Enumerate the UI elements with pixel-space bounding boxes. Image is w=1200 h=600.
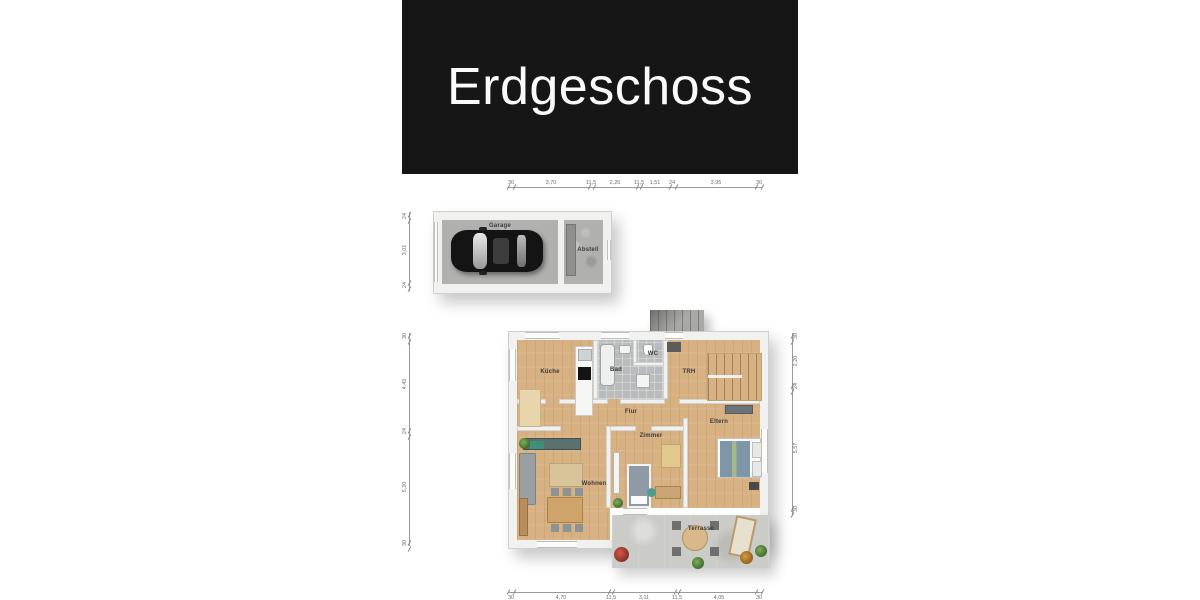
car-mirror	[479, 227, 487, 231]
room-label-garage: Garage	[489, 223, 511, 229]
dim-label: 1,51	[650, 180, 661, 186]
window	[537, 541, 577, 548]
blanket-icon	[720, 441, 750, 477]
room-label-terrasse: Terrasse	[688, 526, 714, 532]
dim-label: 2,26	[610, 180, 621, 186]
dining-table-icon	[547, 497, 583, 523]
chair-icon	[551, 524, 559, 532]
staircase-icon	[707, 353, 762, 401]
sideboard-icon	[523, 438, 581, 450]
window	[601, 332, 629, 339]
single-bed-icon	[627, 464, 651, 508]
window	[509, 349, 516, 381]
dim-label: 11,5	[634, 180, 644, 186]
dim-label: 3,95	[711, 180, 722, 186]
dresser-icon	[725, 405, 753, 414]
plant-icon	[755, 545, 767, 557]
doormat-icon	[667, 342, 681, 352]
dim-label: 5,20	[402, 482, 408, 493]
abstell-floor: Abstell	[564, 220, 603, 284]
room-label-trh: TRH	[683, 369, 696, 375]
pillow-icon	[631, 496, 647, 504]
nightstand-icon	[749, 482, 759, 490]
plant-icon	[519, 438, 530, 449]
page-title: Erdgeschoss	[447, 57, 753, 117]
dim-label: 24	[669, 180, 675, 186]
plant-icon	[613, 498, 623, 508]
window	[525, 332, 559, 339]
dim-line-house-left	[409, 333, 410, 546]
dim-label: 11,5	[606, 595, 616, 600]
bookshelf-icon	[519, 498, 528, 536]
car-icon	[451, 230, 543, 272]
kitchen-cooktop	[578, 367, 591, 380]
kitchen-counter	[575, 346, 593, 416]
car-windshield	[473, 233, 487, 269]
dim-label: 2,20	[793, 356, 799, 367]
floorplan-page: Erdgeschoss 30 3,70 11,5 2,26 11,5 1,51 …	[0, 0, 1200, 600]
window	[509, 453, 516, 489]
plant-icon	[692, 557, 704, 569]
wall-kueche-bad	[593, 340, 598, 399]
dim-label: 30	[793, 333, 799, 339]
wall-wohnen-zimmer	[606, 426, 611, 508]
dim-label: 30	[756, 180, 762, 186]
dim-label: 30	[793, 506, 799, 512]
desk-chair-icon	[647, 488, 656, 497]
terrace-chair-icon	[672, 521, 681, 530]
room-label-wc: WC	[648, 351, 658, 357]
dim-label: 11,5	[586, 180, 596, 186]
dim-label: 4,05	[714, 595, 725, 600]
room-label-zimmer: Zimmer	[640, 433, 663, 439]
room-label-bad: Bad	[610, 367, 622, 373]
dim-label: 30	[402, 333, 408, 339]
car-mirror	[479, 271, 487, 275]
coffee-table-icon	[549, 463, 583, 487]
title-banner: Erdgeschoss	[402, 0, 798, 174]
bathtub-icon	[600, 344, 615, 386]
abstell-door	[607, 240, 611, 260]
dim-label: 3,70	[546, 180, 557, 186]
dim-label: 24	[402, 213, 408, 219]
window	[761, 429, 768, 473]
wall-zimmer-eltern	[683, 418, 688, 508]
dim-label: 30	[508, 595, 514, 600]
car-rear-window	[517, 235, 526, 267]
entrance-stairs	[650, 310, 704, 333]
terrace: Terrasse	[612, 515, 770, 568]
double-bed-icon	[717, 438, 761, 478]
wall-wc-bottom	[633, 362, 664, 366]
chair-icon	[551, 488, 559, 496]
garage-door	[434, 222, 438, 282]
stair-rail	[708, 375, 742, 378]
flower-pot-icon	[614, 547, 629, 562]
dim-label: 4,70	[556, 595, 567, 600]
dim-label: 30	[756, 595, 762, 600]
dim-label: 24	[402, 282, 408, 288]
dim-label: 3,01	[402, 245, 408, 256]
chair-icon	[563, 488, 571, 496]
sideboard-decor	[530, 441, 544, 449]
garage-building: Garage Abstell	[433, 211, 612, 294]
bath-sink-icon	[619, 345, 631, 354]
dim-label: 3,11	[639, 595, 649, 600]
wardrobe-icon	[661, 444, 681, 468]
room-label-flur: Flur	[625, 409, 637, 415]
dim-line-bottom	[508, 592, 762, 593]
terrace-chair-icon	[672, 547, 681, 556]
dim-label: 24	[793, 383, 799, 389]
room-label-eltern: Eltern	[710, 419, 728, 425]
car-roof	[493, 238, 509, 264]
dim-label: 11,5	[672, 595, 682, 600]
dim-label: 30	[402, 540, 408, 546]
plant-icon	[740, 551, 753, 564]
dim-label: 4,45	[402, 379, 408, 390]
desk-icon	[655, 486, 681, 499]
shelf-icon	[566, 224, 576, 276]
chair-icon	[575, 524, 583, 532]
dim-tick	[408, 546, 412, 552]
chair-icon	[563, 524, 571, 532]
washing-machine-icon	[636, 374, 650, 388]
radiator-icon	[613, 452, 620, 494]
kitchen-sink	[578, 349, 592, 361]
dim-label: 5,57	[793, 443, 799, 454]
terrace-door	[623, 508, 647, 515]
entrance-door	[665, 332, 683, 339]
dim-label: 24	[402, 428, 408, 434]
room-label-kueche: Küche	[540, 369, 559, 375]
wall-flur-zimmer	[651, 426, 686, 431]
wall-toprow-bottom	[620, 399, 665, 404]
kitchen-table	[519, 389, 541, 427]
terrace-chair-icon	[710, 547, 719, 556]
room-label-wohnen: Wohnen	[582, 481, 607, 487]
room-label-abstell: Abstell	[577, 247, 598, 253]
dim-label: 30	[508, 180, 514, 186]
chair-icon	[575, 488, 583, 496]
